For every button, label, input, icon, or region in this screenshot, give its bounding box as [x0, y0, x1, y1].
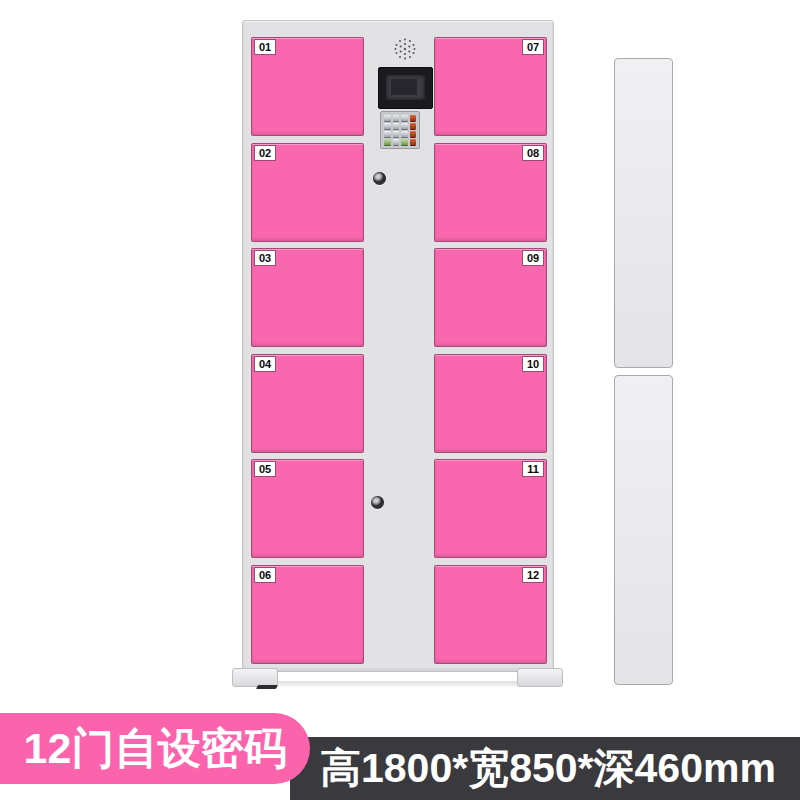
locker-door: 05: [251, 459, 364, 558]
locker-door: 12: [434, 565, 547, 664]
keypad-key: [393, 115, 400, 121]
locker-door: 02: [251, 143, 364, 242]
door-number-label: 10: [523, 357, 543, 371]
keypad-key: [384, 131, 391, 137]
keypad-key: [410, 131, 417, 137]
door-number-label: 05: [255, 462, 275, 476]
keypad-key: [393, 123, 400, 129]
door-number-label: 12: [523, 568, 543, 582]
keypad-key: [393, 131, 400, 137]
locker-door: 07: [434, 37, 547, 136]
screen-glass: [386, 75, 425, 100]
keypad-key: [384, 123, 391, 129]
product-photo: 01 02 03 04 05 06 07 08 09 10 11 12: [0, 0, 800, 800]
keypad-key: [401, 123, 408, 129]
keypad-key: [410, 123, 417, 129]
keypad-key: [401, 115, 408, 121]
dimensions-banner: 高1800*宽850*深460mm: [290, 737, 800, 800]
control-panel-upper: [614, 58, 673, 368]
base-foot-right: [517, 668, 563, 687]
keypad-key: [401, 139, 408, 145]
door-number-label: 04: [255, 357, 275, 371]
door-number-label: 02: [255, 146, 275, 160]
keyhole-icon: [373, 172, 386, 185]
display-screen: [378, 67, 433, 109]
locker-door: 01: [251, 37, 364, 136]
door-number-label: 08: [523, 146, 543, 160]
keypad-key: [410, 139, 417, 145]
control-panel-lower: [614, 375, 673, 685]
locker-door: 03: [251, 248, 364, 347]
locker-door: 06: [251, 565, 364, 664]
keypad-key: [393, 139, 400, 145]
door-number-label: 09: [523, 251, 543, 265]
keypad-key: [410, 115, 417, 121]
door-number-label: 03: [255, 251, 275, 265]
feature-banner: 12门自设密码: [0, 713, 310, 784]
door-number-label: 07: [523, 40, 543, 54]
numeric-keypad: [380, 111, 420, 149]
floor-shadow: [247, 681, 539, 687]
foot-shadow: [256, 685, 278, 689]
keypad-key: [384, 139, 391, 145]
locker-door: 09: [434, 248, 547, 347]
locker-door: 08: [434, 143, 547, 242]
keypad-key: [401, 131, 408, 137]
door-number-label: 06: [255, 568, 275, 582]
keyhole-icon: [371, 496, 384, 509]
locker-door: 10: [434, 354, 547, 453]
speaker-grille-icon: [393, 37, 417, 61]
locker-door: 04: [251, 354, 364, 453]
door-number-label: 11: [523, 462, 543, 476]
keypad-key: [384, 115, 391, 121]
locker-door: 11: [434, 459, 547, 558]
door-number-label: 01: [255, 40, 275, 54]
